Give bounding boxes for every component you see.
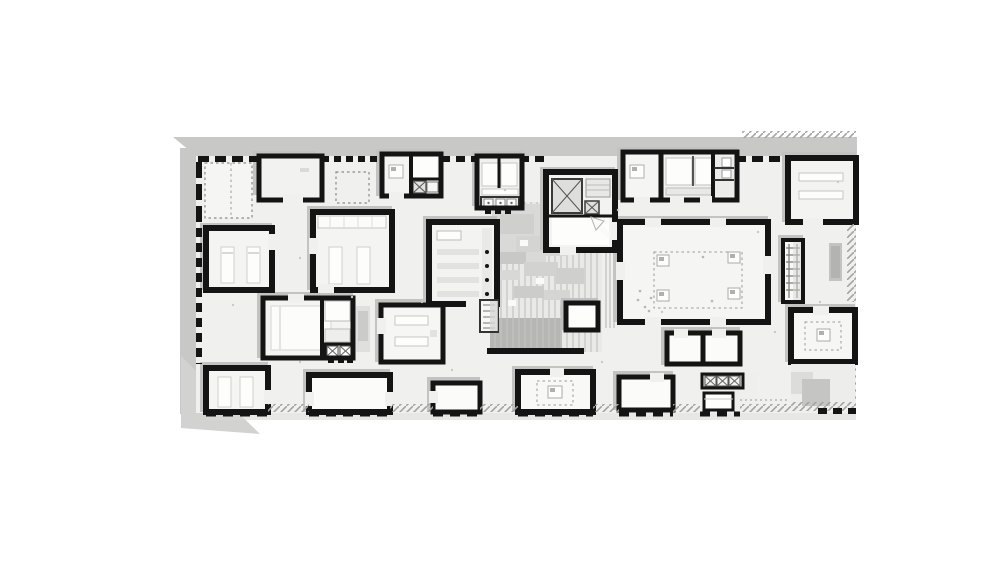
- ladder-shade: [490, 301, 498, 331]
- atrium-white-chip: [520, 240, 528, 246]
- sill-tooth: [347, 358, 353, 363]
- desk-bar: [437, 249, 479, 255]
- bed: [218, 377, 231, 407]
- door-gap: [650, 373, 664, 382]
- desk-icon: [389, 165, 403, 178]
- room-floor: [566, 303, 598, 330]
- floor-speck: [421, 301, 423, 303]
- balcony-strip: [482, 228, 492, 298]
- closet-strip: [318, 216, 386, 228]
- door-gap: [429, 391, 438, 403]
- furniture-mark: [430, 330, 437, 337]
- bed: [240, 377, 253, 407]
- floor-speck: [819, 301, 821, 303]
- hatch-strip-bottom: [390, 404, 433, 412]
- floor-speck: [351, 296, 353, 298]
- wardrobe-strip-inner: [358, 311, 368, 341]
- table-icon-fold: [550, 388, 555, 392]
- floor-speck: [232, 304, 234, 306]
- door-gap: [389, 192, 404, 201]
- door-gap: [385, 392, 394, 406]
- floor-speck: [601, 361, 603, 363]
- door-gap: [264, 390, 273, 404]
- door-gap: [268, 234, 277, 250]
- door-gap: [700, 196, 712, 204]
- door-gap: [283, 194, 303, 203]
- scatter-dot: [702, 256, 705, 259]
- room-floor: [206, 228, 272, 290]
- room-floor: [259, 156, 322, 200]
- sill-tooth: [495, 209, 501, 214]
- cabinet: [325, 329, 350, 342]
- desk-bar: [437, 263, 479, 269]
- door-gap: [634, 197, 650, 205]
- door-gap: [710, 218, 726, 227]
- terrace-pad-dark: [802, 379, 830, 406]
- door-gap: [803, 218, 823, 226]
- hatch-strip-bottom: [480, 404, 518, 412]
- room-floor: [619, 377, 673, 410]
- chair-dot: [485, 278, 489, 282]
- sink-drain: [510, 202, 512, 204]
- door-gap: [616, 262, 625, 280]
- scatter-dot: [711, 300, 714, 303]
- bed-horizontal: [395, 337, 428, 346]
- closet-strip: [666, 188, 712, 195]
- counter: [482, 189, 518, 195]
- floor-speck: [451, 369, 453, 371]
- door-gap: [710, 317, 726, 326]
- door-gap: [645, 317, 661, 326]
- table: [799, 173, 843, 181]
- scatter-dot: [639, 290, 642, 293]
- sill-tooth: [338, 358, 344, 363]
- atrium-white-chip: [536, 278, 544, 284]
- desk-bar: [437, 277, 479, 283]
- hatch-strip-bottom: [593, 404, 619, 412]
- sill-tooth: [485, 209, 491, 214]
- floor-speck: [299, 361, 301, 363]
- floor-speck: [299, 257, 301, 259]
- floor-speck: [774, 331, 776, 333]
- chair-dot: [485, 264, 489, 268]
- room-floor: [433, 383, 480, 412]
- hall-floor: [620, 222, 768, 322]
- wardrobe-block-inner: [831, 246, 840, 278]
- closet: [695, 158, 712, 185]
- atrium-south-wall: [487, 348, 584, 354]
- chair-dot: [485, 250, 489, 254]
- floor-speck: [617, 209, 619, 211]
- desk-head: [437, 231, 461, 240]
- door-gap: [763, 256, 772, 274]
- closet: [666, 158, 692, 185]
- desk-icon-fold: [632, 167, 637, 171]
- desk-icon: [630, 165, 644, 178]
- scatter-dot: [637, 299, 640, 302]
- table-icon-fold: [730, 290, 735, 294]
- ladder-shade: [793, 242, 801, 300]
- door-gap: [318, 284, 334, 293]
- room-floor: [788, 158, 856, 222]
- hatch-strip-bottom: [268, 404, 309, 412]
- table-icon-fold: [819, 331, 824, 335]
- door-gap: [305, 392, 314, 406]
- table: [799, 191, 843, 199]
- toilet-stall: [501, 163, 517, 186]
- furniture-mark: [300, 168, 309, 172]
- atrium-block: [500, 252, 526, 264]
- door-gap: [674, 329, 688, 338]
- hatch-strip-top-right: [742, 131, 856, 138]
- hatch-strip-right: [847, 224, 856, 302]
- sill-tooth: [328, 358, 334, 363]
- table-icon-fold: [730, 254, 735, 258]
- room-floor: [309, 375, 390, 412]
- table-icon-fold: [659, 257, 664, 261]
- fixture-box: [427, 182, 438, 192]
- door-gap: [645, 218, 661, 227]
- atrium-block: [524, 262, 558, 276]
- bed: [329, 247, 342, 284]
- floor-speck: [757, 231, 759, 233]
- fixture-box: [722, 170, 731, 178]
- room-floor: [206, 368, 268, 412]
- door-gap: [309, 238, 318, 254]
- bed: [357, 247, 370, 284]
- fixture-box: [722, 158, 731, 167]
- atrium-block: [514, 286, 544, 298]
- atrium-block: [500, 270, 520, 280]
- hatch-strip-bottom: [673, 404, 700, 412]
- door-gap: [670, 196, 684, 204]
- door-gap: [288, 294, 304, 303]
- scatter-dot: [650, 297, 653, 300]
- door-gap: [813, 306, 829, 315]
- sill-tooth: [505, 209, 511, 214]
- door-gap: [377, 318, 386, 334]
- scatter-dot: [648, 310, 651, 313]
- door-gap: [712, 329, 726, 338]
- door-gap: [560, 247, 576, 255]
- atrium-block: [500, 214, 534, 234]
- scatter-dot: [644, 306, 647, 309]
- desk-icon-fold: [391, 167, 396, 171]
- table-icon-fold: [659, 292, 664, 296]
- floor-speck: [661, 311, 663, 313]
- sink-drain: [487, 202, 489, 204]
- hatch-strip-bottom: [740, 404, 791, 412]
- duct-cell: [586, 179, 610, 197]
- shower-cell: [413, 157, 437, 178]
- atrium-dark-texture: [490, 318, 562, 348]
- chair-dot: [485, 292, 489, 296]
- toilet-stall: [482, 163, 498, 186]
- floor-plan: [0, 0, 1000, 564]
- atrium-block: [556, 268, 584, 284]
- shower-cell: [325, 301, 350, 321]
- floor-plan-canvas: [0, 0, 1000, 564]
- atrium-white-chip: [508, 300, 516, 306]
- dashed-room-outline: [205, 163, 252, 218]
- floor-speck: [837, 181, 839, 183]
- bed-horizontal: [395, 316, 428, 325]
- counter-unit: [704, 393, 733, 410]
- door-gap: [550, 368, 564, 377]
- floor-speck: [504, 189, 506, 191]
- desk-bar: [437, 291, 479, 297]
- sink-drain: [499, 202, 501, 204]
